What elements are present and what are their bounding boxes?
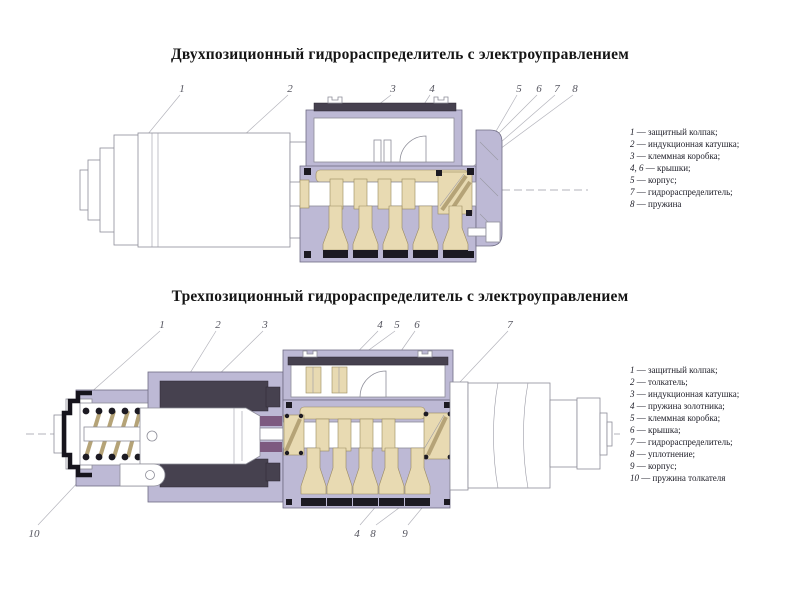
spool-land [354, 179, 367, 209]
callout-number: 5 [516, 83, 522, 95]
callout-number: 9 [402, 528, 408, 540]
callout-number: 2 [215, 319, 221, 331]
upper-channel [300, 407, 425, 419]
seal [286, 499, 292, 505]
callout-number: 4 [429, 83, 435, 95]
two-position-diagram-drawing: 1 2 3 4 5 6 7 8 [78, 82, 598, 277]
legend-item-text: крышки; [657, 163, 691, 173]
callout-number: 7 [554, 83, 560, 95]
legend-item: 7 — гидрораспределитель; [630, 186, 798, 198]
callout-number: 7 [507, 319, 513, 331]
legend-item: 4, 6 — крышки; [630, 162, 798, 174]
legend-item-text: защитный колпак; [648, 127, 718, 137]
legend-item: 9 — корпус; [630, 460, 798, 472]
callout-number: 10 [29, 528, 41, 540]
seal [304, 251, 311, 258]
callout-number: 3 [389, 83, 396, 95]
legend-item: 5 — клеммная коробка; [630, 412, 798, 424]
three-position-diagram-drawing: 1 2 3 4 5 6 7 10 4 8 9 [20, 315, 640, 545]
legend-item: 2 — толкатель; [630, 376, 798, 388]
legend-item-separator: — [635, 437, 649, 447]
callout-number: 8 [572, 83, 578, 95]
seal [304, 168, 311, 175]
legend-item: 8 — пружина [630, 198, 798, 210]
legend-item-text: толкатель; [648, 377, 688, 387]
valve-body [283, 350, 453, 508]
spool-land [402, 179, 415, 209]
legend-item: 4 — пружина золотника; [630, 400, 798, 412]
spool-spring-left [284, 414, 304, 455]
legend-item: 1 — защитный колпак; [630, 126, 798, 138]
spool-land [360, 419, 373, 451]
legend-item-separator: — [635, 377, 649, 387]
legend-item: 6 — крышка; [630, 424, 798, 436]
solenoid-housing [80, 133, 308, 247]
seal [444, 499, 450, 505]
legend-item: 7 — гидрораспределитель; [630, 436, 798, 448]
legend-item-separator: — [635, 365, 649, 375]
spool-land [330, 179, 343, 209]
callout-labels: 1 2 3 4 5 6 7 8 [179, 83, 578, 95]
legend-item-separator: — [635, 461, 649, 471]
legend-item-text: гидрораспределитель; [648, 437, 733, 447]
spool-land [316, 419, 329, 451]
seal [467, 168, 474, 175]
legend-item-text: защитный колпак; [648, 365, 718, 375]
right-solenoid-housing [450, 382, 612, 490]
legend-item-separator: — [635, 413, 649, 423]
figure2-legend: 1 — защитный колпак;2 — толкатель;3 — ин… [630, 364, 798, 484]
figure1-legend: 1 — защитный колпак;2 — индукционная кат… [630, 126, 798, 210]
seal [286, 402, 292, 408]
spool-spring-right [424, 412, 453, 460]
callout-number: 1 [179, 83, 185, 95]
legend-item-separator: — [635, 389, 649, 399]
legend-item-separator: — [635, 425, 649, 435]
figure1-title: Двухпозиционный гидрораспределитель с эл… [0, 46, 800, 64]
legend-item-text: корпус; [648, 461, 677, 471]
legend-item-text: индукционная катушка; [648, 389, 739, 399]
slide: Двухпозиционный гидрораспределитель с эл… [0, 0, 800, 600]
induction-coil [160, 381, 268, 411]
callout-number: 4 [377, 319, 383, 331]
spool-land [382, 419, 395, 451]
spool-land [378, 179, 391, 209]
legend-item-number: 4, 6 [630, 163, 644, 173]
terminal-box [306, 97, 462, 170]
legend-item-separator: — [635, 127, 649, 137]
legend-item-text: пружина золотника; [648, 401, 725, 411]
legend-item: 5 — корпус; [630, 174, 798, 186]
legend-item-separator: — [635, 449, 649, 459]
legend-item: 3 — клеммная коробка; [630, 150, 798, 162]
seal [444, 402, 450, 408]
callout-number: 8 [370, 528, 376, 540]
figure2-title: Трехпозиционный гидрораспределитель с эл… [0, 288, 800, 306]
callout-number: 3 [261, 319, 268, 331]
legend-item-number: 10 [630, 473, 639, 483]
mounting-lug [120, 464, 165, 486]
legend-item-separator: — [635, 187, 649, 197]
legend-item-text: клеммная коробка; [648, 151, 720, 161]
legend-item-text: уплотнение; [648, 449, 695, 459]
legend-item: 8 — уплотнение; [630, 448, 798, 460]
legend-item-separator: — [635, 401, 649, 411]
legend-item-text: клеммная коробка; [648, 413, 720, 423]
legend-item: 3 — индукционная катушка; [630, 388, 798, 400]
spool-land [338, 419, 351, 451]
callout-number: 6 [414, 319, 420, 331]
legend-item: 2 — индукционная катушка; [630, 138, 798, 150]
seal [467, 251, 474, 258]
terminal-screw-icon [328, 97, 342, 103]
terminal-screw-icon [434, 97, 448, 103]
legend-item-separator: — [635, 175, 649, 185]
legend-item-text: индукционная катушка; [648, 139, 739, 149]
legend-item-text: гидрораспределитель; [648, 187, 733, 197]
callout-number: 1 [159, 319, 165, 331]
legend-item: 1 — защитный колпак; [630, 364, 798, 376]
legend-item-separator: — [635, 199, 649, 209]
legend-item-text: корпус; [648, 175, 677, 185]
legend-item: 10 — пружина толкателя [630, 472, 798, 484]
legend-item-separator: — [639, 473, 653, 483]
callout-number: 5 [394, 319, 400, 331]
callout-number: 4 [354, 528, 360, 540]
legend-item-text: пружина [648, 199, 681, 209]
legend-item-separator: — [644, 163, 658, 173]
callout-number: 2 [287, 83, 293, 95]
callout-number: 6 [536, 83, 542, 95]
legend-item-separator: — [635, 151, 649, 161]
legend-item-text: пружина толкателя [653, 473, 726, 483]
legend-item-text: крышка; [648, 425, 681, 435]
legend-item-separator: — [635, 139, 649, 149]
